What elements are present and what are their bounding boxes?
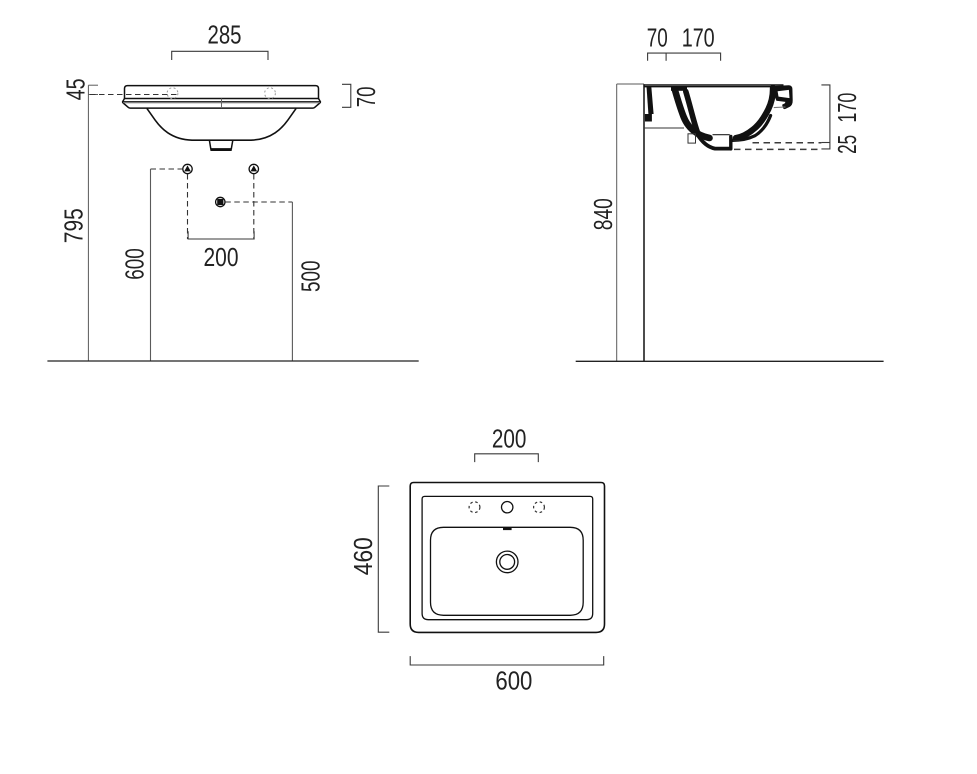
svg-text:45: 45 (61, 78, 91, 100)
svg-text:460: 460 (348, 537, 378, 575)
svg-text:500: 500 (296, 261, 326, 293)
svg-text:285: 285 (208, 20, 242, 50)
svg-text:70: 70 (351, 87, 381, 108)
svg-text:170: 170 (832, 93, 862, 123)
svg-text:600: 600 (495, 666, 532, 696)
svg-text:840: 840 (588, 198, 618, 230)
svg-text:25: 25 (832, 135, 862, 154)
svg-text:795: 795 (58, 208, 88, 243)
svg-text:70: 70 (647, 22, 668, 52)
svg-text:200: 200 (492, 423, 527, 453)
svg-text:170: 170 (682, 22, 715, 52)
svg-text:200: 200 (204, 242, 239, 272)
svg-text:600: 600 (120, 248, 150, 280)
